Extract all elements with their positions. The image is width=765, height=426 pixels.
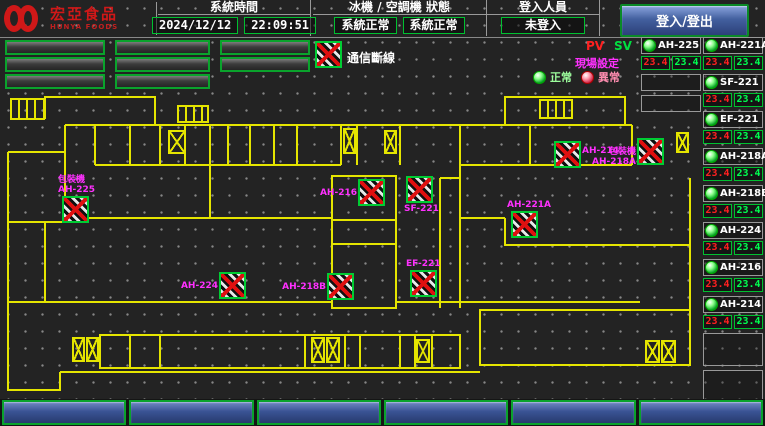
- unit-status-button[interactable]: AH-224: [703, 222, 763, 239]
- elevator-icon: [645, 340, 660, 363]
- unit-status-button[interactable]: AH-218B: [703, 185, 763, 202]
- unit-status-button[interactable]: AH-221A: [703, 37, 763, 54]
- header-bar: 宏亞食品 HUNYA FOODS 系統時間 2024/12/12 22:09:5…: [0, 0, 765, 38]
- marker-equipment: 包裝機: [58, 175, 95, 185]
- comm-loss-marker[interactable]: AH-224: [219, 272, 246, 299]
- unit-status-button[interactable]: AH-218A: [703, 148, 763, 165]
- bottom-menu-bar: [0, 399, 765, 426]
- marker-unit-name: AH-224: [181, 281, 218, 291]
- menu-button[interactable]: [384, 400, 508, 425]
- marker-label: AH-216: [320, 188, 357, 198]
- unit-status-button[interactable]: AH-214: [703, 296, 763, 313]
- unit-pv-value: 23.4: [703, 56, 732, 70]
- marker-unit-name: AH-225: [58, 185, 95, 195]
- elevator-icon: [676, 132, 689, 153]
- unit-sv-value: 23.4: [734, 93, 763, 107]
- unit-status-led-icon: [705, 39, 718, 52]
- abnormal-led-icon: [581, 71, 594, 84]
- elevator-icon: [343, 128, 356, 154]
- unit-status-led-icon: [705, 187, 718, 200]
- unit-pv-value: 23.4: [703, 204, 732, 218]
- marker-label: AH-221A: [507, 200, 551, 210]
- abnormal-legend-label: 異常: [598, 69, 620, 85]
- unit-name: AH-218A: [720, 151, 765, 162]
- comm-loss-marker[interactable]: EF-221: [410, 270, 437, 297]
- unit-name: AH-218B: [720, 188, 765, 199]
- floor-button[interactable]: [5, 40, 105, 55]
- menu-button[interactable]: [639, 400, 763, 425]
- unit-sv-value: 23.4: [734, 56, 763, 70]
- unit-status-led-icon: [705, 150, 718, 163]
- unit-name: EF-221: [720, 114, 758, 125]
- empty-slot: [641, 74, 701, 91]
- unit-name: AH-221A: [720, 40, 765, 51]
- floor-nav: [5, 40, 310, 89]
- machine-status-label: 冰機 / 空調機 狀態: [313, 0, 486, 15]
- unit-sv-value: 23.4: [734, 315, 763, 329]
- comm-loss-legend-icon: [315, 41, 342, 68]
- floor-button[interactable]: [115, 57, 210, 72]
- unit-status-led-icon: [705, 261, 718, 274]
- comm-loss-marker[interactable]: AH-221A: [511, 211, 538, 238]
- elevator-icon: [384, 130, 397, 154]
- marker-label: 包裝機 AH-225: [58, 175, 95, 195]
- logo-subtext: HUNYA FOODS: [50, 24, 118, 31]
- marker-unit-name: EF-221: [406, 259, 441, 269]
- marker-label: AH-224: [181, 281, 218, 291]
- sv-legend-label: SV: [614, 39, 632, 53]
- unit-pv-value: 23.4: [703, 315, 732, 329]
- floor-button[interactable]: [220, 57, 310, 72]
- marker-label: EF-221: [406, 259, 441, 269]
- comm-loss-marker[interactable]: AH-218B: [327, 273, 354, 300]
- comm-loss-marker[interactable]: 包裝機 AH-225: [62, 196, 89, 223]
- unit-status-led-icon: [705, 224, 718, 237]
- marker-equipment: 包裝機: [592, 147, 636, 157]
- unit-row: AH-216 23.4 23.4: [703, 259, 763, 292]
- marker-label: SF-221: [404, 204, 439, 214]
- comm-loss-marker[interactable]: AH-214: [554, 141, 581, 168]
- normal-led-icon: [533, 71, 546, 84]
- unit-status-button[interactable]: SF-221: [703, 74, 763, 91]
- logo-text: 宏亞食品: [50, 7, 118, 22]
- elevator-icon: [311, 337, 325, 363]
- unit-sv-value: 23.4: [672, 56, 701, 70]
- comm-loss-marker[interactable]: 包裝機 AH-218A: [637, 138, 664, 165]
- empty-slot: [641, 95, 701, 112]
- unit-row: AH-221A 23.4 23.4: [703, 37, 763, 70]
- elevator-icon: [416, 339, 430, 363]
- ac-status-value: 系統正常: [403, 17, 465, 34]
- hmi-screen: 宏亞食品 HUNYA FOODS 系統時間 2024/12/12 22:09:5…: [0, 0, 765, 426]
- company-logo: 宏亞食品 HUNYA FOODS: [4, 2, 157, 35]
- unit-pv-value: 23.4: [641, 56, 670, 70]
- unit-name: AH-216: [720, 262, 761, 273]
- elevator-icon: [72, 337, 85, 362]
- system-clock-value: 22:09:51: [244, 17, 316, 34]
- unit-row: SF-221 23.4 23.4: [703, 74, 763, 107]
- system-time-group: 系統時間 2024/12/12 22:09:51: [158, 0, 311, 36]
- unit-pv-value: 23.4: [703, 241, 732, 255]
- unit-row: AH-225 23.4 23.4: [641, 37, 701, 70]
- unit-pv-value: 23.4: [703, 93, 732, 107]
- unit-row: EF-221 23.4 23.4: [703, 111, 763, 144]
- unit-row: AH-218B 23.4 23.4: [703, 185, 763, 218]
- normal-legend-label: 正常: [550, 69, 572, 85]
- unit-row: AH-224 23.4 23.4: [703, 222, 763, 255]
- unit-row: AH-214 23.4 23.4: [703, 296, 763, 329]
- unit-sv-value: 23.4: [734, 204, 763, 218]
- comm-loss-marker[interactable]: AH-216: [358, 179, 385, 206]
- menu-button[interactable]: [511, 400, 635, 425]
- marker-label: AH-218B: [282, 282, 326, 292]
- unit-status-led-icon: [705, 113, 718, 126]
- abnormal-legend: 異常: [581, 69, 620, 85]
- marker-unit-name: AH-218B: [282, 282, 326, 292]
- pv-legend-label: PV: [586, 39, 604, 53]
- unit-pv-value: 23.4: [703, 130, 732, 144]
- elevator-icon: [661, 340, 676, 363]
- floor-button[interactable]: [5, 57, 105, 72]
- unit-sv-value: 23.4: [734, 130, 763, 144]
- system-date-value: 2024/12/12: [152, 17, 238, 34]
- marker-unit-name: AH-218A: [592, 157, 636, 167]
- login-logout-button[interactable]: 登入/登出: [620, 4, 749, 37]
- marker-label: 包裝機 AH-218A: [592, 147, 636, 167]
- floor-button[interactable]: [220, 40, 310, 55]
- marker-unit-name: SF-221: [404, 204, 439, 214]
- unit-status-led-icon: [643, 39, 656, 52]
- unit-pv-value: 23.4: [703, 167, 732, 181]
- floor-button[interactable]: [115, 40, 210, 55]
- unit-name: AH-224: [720, 225, 761, 236]
- system-time-label: 系統時間: [158, 0, 310, 15]
- unit-status-led-icon: [705, 76, 718, 89]
- normal-legend: 正常: [533, 69, 572, 85]
- unit-row: AH-218A 23.4 23.4: [703, 148, 763, 181]
- elevator-icon: [168, 130, 186, 154]
- unit-status-led-icon: [705, 298, 718, 311]
- chiller-status-value: 系統正常: [334, 17, 396, 34]
- unit-name: AH-225: [658, 40, 699, 51]
- comm-loss-marker[interactable]: SF-221: [406, 176, 433, 203]
- menu-button[interactable]: [129, 400, 253, 425]
- floor-button[interactable]: [115, 74, 210, 89]
- unit-name: AH-214: [720, 299, 761, 310]
- unit-sv-value: 23.4: [734, 278, 763, 292]
- unit-sv-value: 23.4: [734, 241, 763, 255]
- menu-button[interactable]: [2, 400, 126, 425]
- unit-status-button[interactable]: AH-216: [703, 259, 763, 276]
- unit-status-button[interactable]: AH-225: [641, 37, 701, 54]
- login-group: 登入人員 未登入: [487, 0, 600, 36]
- floorplan: 包裝機 AH-225 AH-224 AH-216 SF-221: [0, 90, 700, 400]
- menu-button[interactable]: [257, 400, 381, 425]
- elevator-icon: [326, 337, 340, 363]
- hunya-logo-icon: [4, 4, 44, 34]
- unit-sv-value: 23.4: [734, 167, 763, 181]
- empty-slot: [703, 333, 763, 366]
- floor-button[interactable]: [5, 74, 105, 89]
- machine-status-group: 冰機 / 空調機 狀態 系統正常 系統正常: [313, 0, 487, 36]
- unit-status-button[interactable]: EF-221: [703, 111, 763, 128]
- unit-column-right: AH-221A 23.4 23.4 SF-221 23.4 23.4: [703, 37, 763, 403]
- comm-loss-legend-label: 通信斷線: [347, 49, 395, 66]
- unit-name: SF-221: [720, 77, 759, 88]
- unit-column-left: AH-225 23.4 23.4: [641, 37, 701, 112]
- elevator-icon: [86, 337, 99, 362]
- marker-unit-name: AH-221A: [507, 200, 551, 210]
- login-person-label: 登入人員: [487, 0, 599, 15]
- unit-pv-value: 23.4: [703, 278, 732, 292]
- login-status-value: 未登入: [501, 17, 585, 34]
- marker-unit-name: AH-216: [320, 188, 357, 198]
